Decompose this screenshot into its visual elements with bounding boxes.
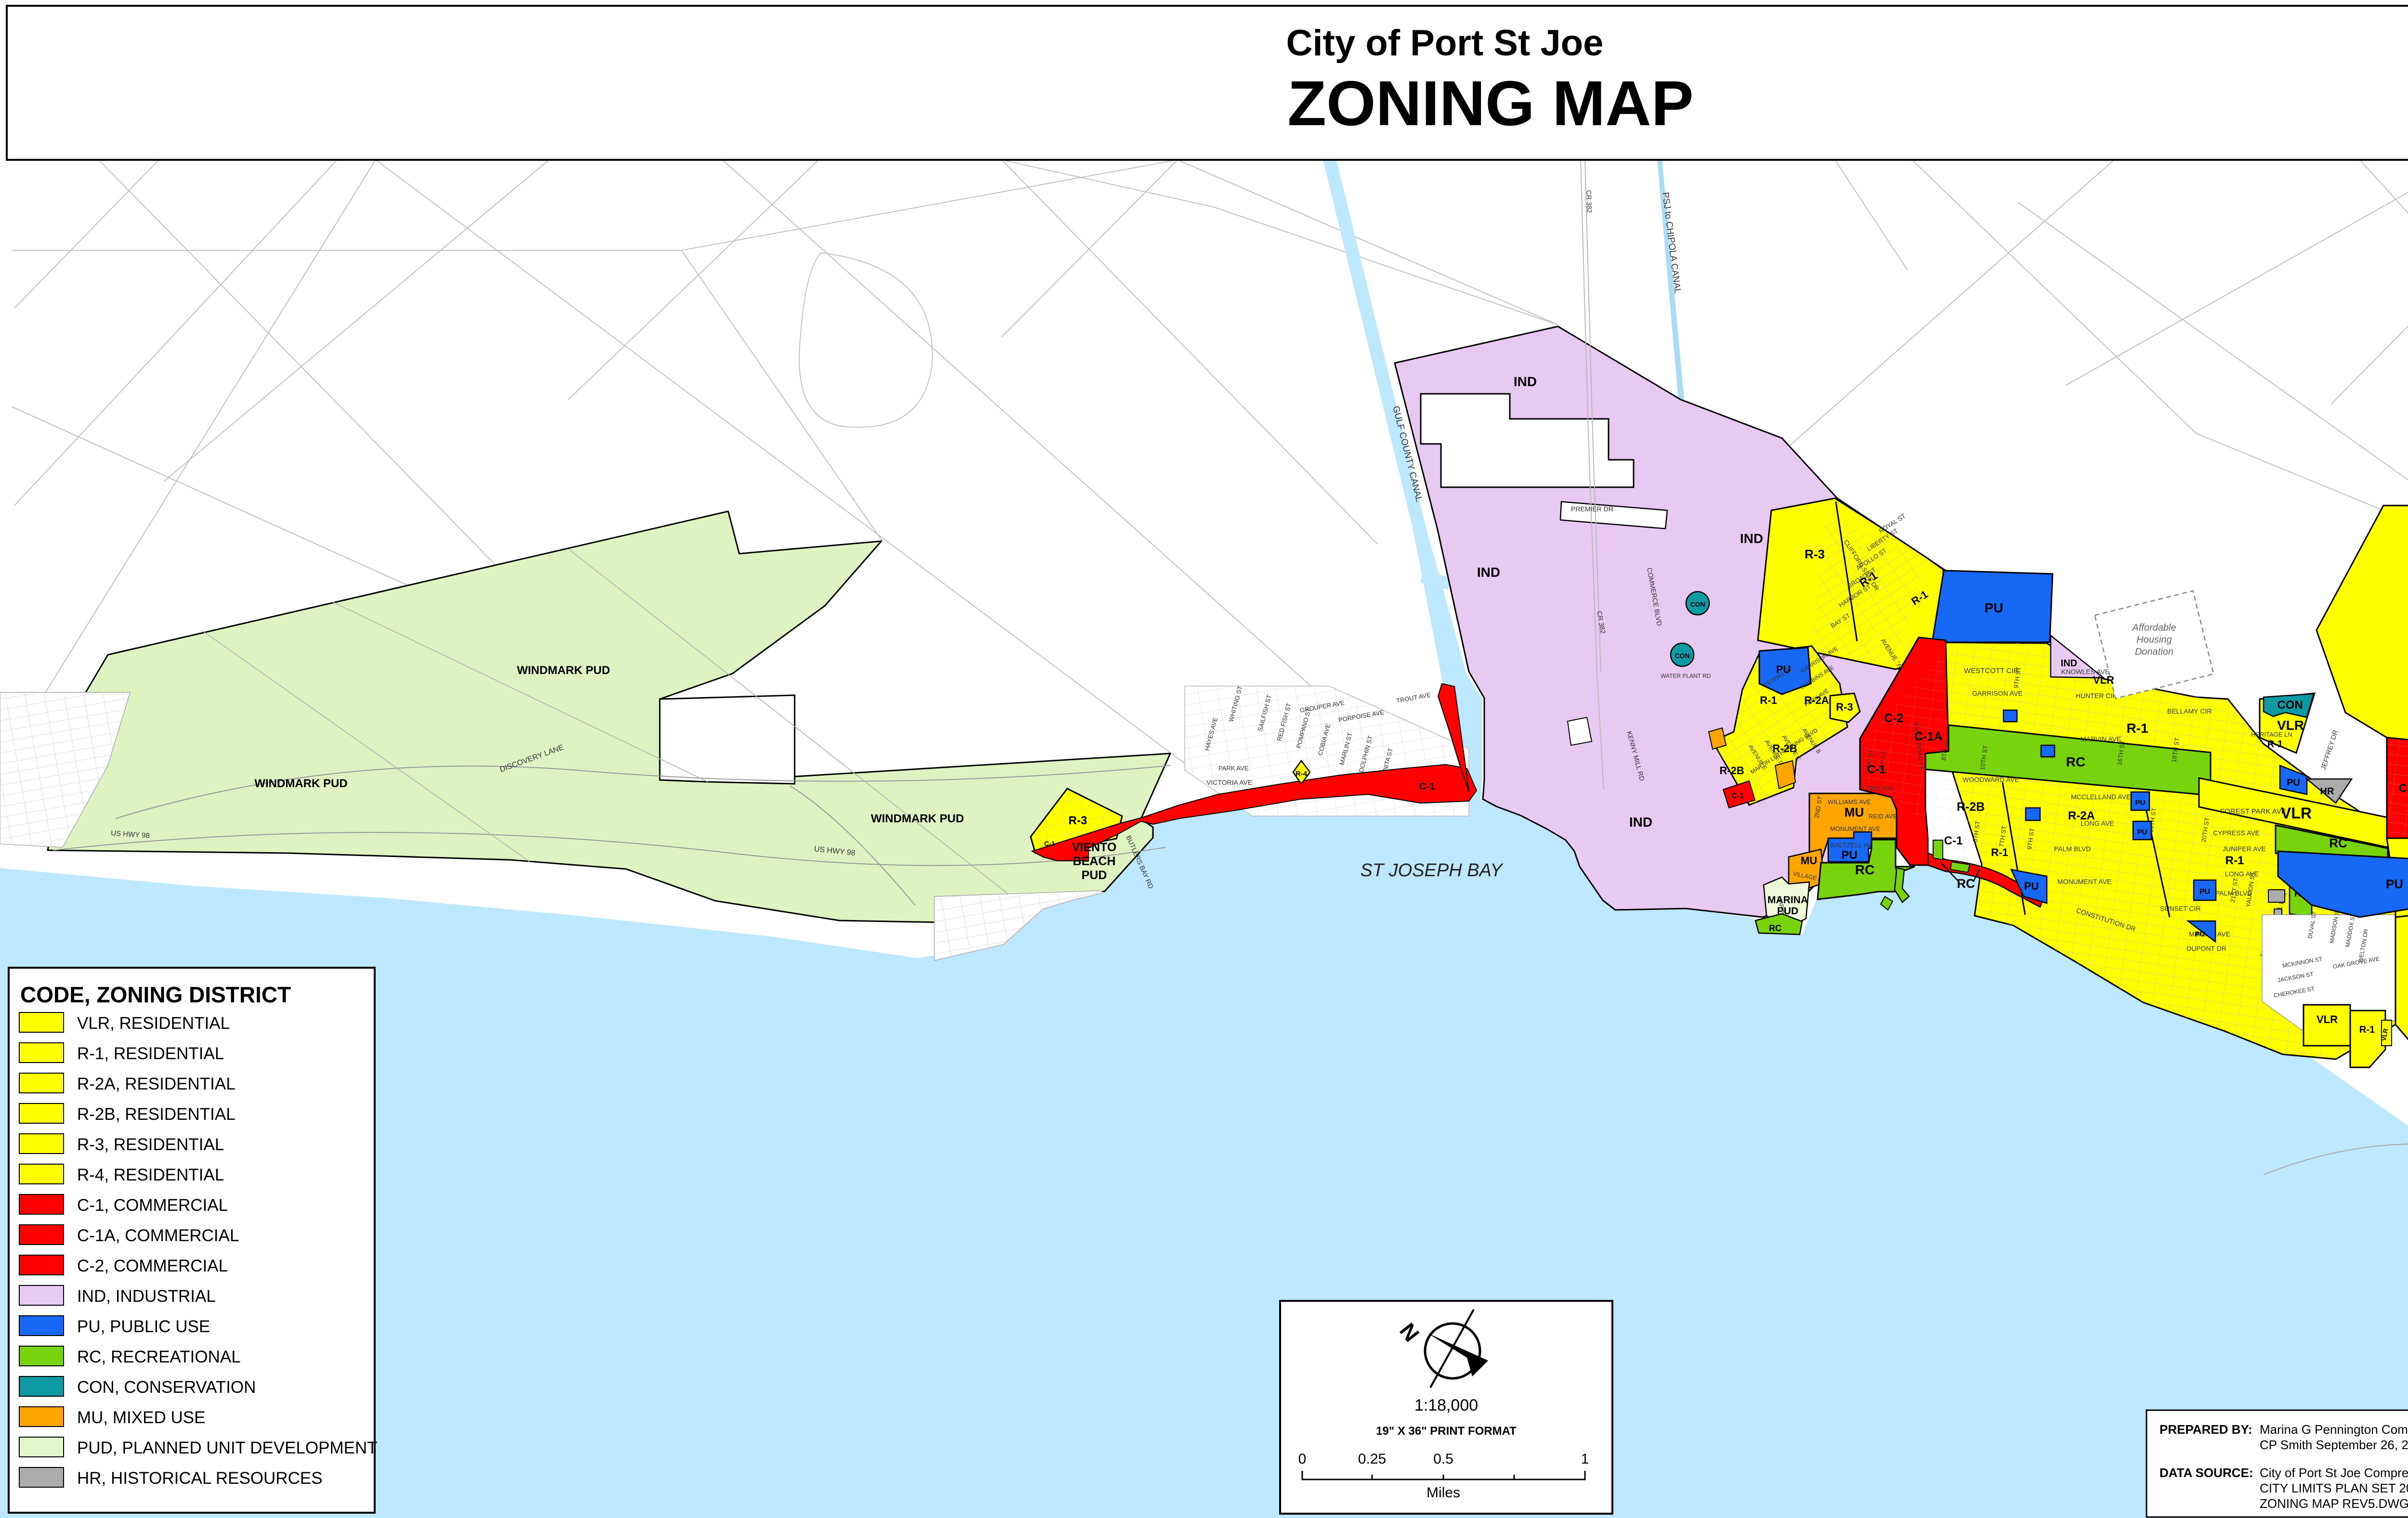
svg-text:MARVIN AVE: MARVIN AVE xyxy=(2081,735,2121,743)
svg-text:PARK AVE: PARK AVE xyxy=(1218,765,1249,772)
svg-text:R-4, RESIDENTIAL: R-4, RESIDENTIAL xyxy=(77,1166,224,1184)
svg-text:WESTCOTT CIR: WESTCOTT CIR xyxy=(1964,667,2019,675)
svg-text:PU: PU xyxy=(2199,888,2210,896)
svg-text:C-1, COMMERCIAL: C-1, COMMERCIAL xyxy=(77,1196,228,1215)
svg-text:R-1: R-1 xyxy=(1991,846,2008,858)
svg-text:HR: HR xyxy=(2320,786,2334,797)
svg-text:City of Port St Joe: City of Port St Joe xyxy=(1286,23,1604,64)
svg-text:BALTZELL AVE: BALTZELL AVE xyxy=(1830,841,1877,849)
svg-text:LONG AVE: LONG AVE xyxy=(1863,785,1894,792)
svg-text:CODE, ZONING DISTRICT: CODE, ZONING DISTRICT xyxy=(20,982,291,1007)
svg-text:HERITAGE LN: HERITAGE LN xyxy=(2251,731,2292,738)
svg-text:ZONING MAP REV5.DWG: ZONING MAP REV5.DWG xyxy=(2260,1496,2408,1511)
svg-text:MONUMENT AVE: MONUMENT AVE xyxy=(2057,878,2111,885)
svg-text:PU: PU xyxy=(2135,799,2146,807)
svg-text:PALM BLVD: PALM BLVD xyxy=(2054,845,2091,853)
svg-text:HUNTER CIR: HUNTER CIR xyxy=(2076,692,2117,700)
svg-text:PREMIER DR: PREMIER DR xyxy=(1571,505,1613,513)
svg-text:R-1: R-1 xyxy=(2267,739,2283,750)
svg-text:R-1: R-1 xyxy=(2126,721,2148,736)
svg-text:RC: RC xyxy=(2329,836,2347,850)
svg-text:PU, PUBLIC USE: PU, PUBLIC USE xyxy=(77,1317,210,1336)
svg-text:MARINA: MARINA xyxy=(1767,895,1808,906)
svg-text:R-1, RESIDENTIAL: R-1, RESIDENTIAL xyxy=(77,1044,224,1063)
svg-text:IND: IND xyxy=(1629,815,1652,830)
svg-text:VICTORIA AVE: VICTORIA AVE xyxy=(1206,778,1252,786)
svg-text:IND: IND xyxy=(2061,658,2077,669)
svg-text:RC: RC xyxy=(2066,754,2085,769)
svg-text:C-1: C-1 xyxy=(1419,781,1435,792)
svg-text:MCCLELLAND AVE: MCCLELLAND AVE xyxy=(2071,793,2131,801)
svg-text:VLR, RESIDENTIAL: VLR, RESIDENTIAL xyxy=(77,1014,230,1033)
svg-text:VLR: VLR xyxy=(2316,1013,2338,1025)
svg-text:R-3, RESIDENTIAL: R-3, RESIDENTIAL xyxy=(77,1135,224,1154)
svg-text:HR, HISTORICAL RESOURCES: HR, HISTORICAL RESOURCES xyxy=(77,1469,323,1488)
svg-text:DATA SOURCE:: DATA SOURCE: xyxy=(2159,1466,2253,1480)
svg-text:WATER PLANT RD: WATER PLANT RD xyxy=(1661,673,1711,679)
svg-text:DUPONT DR: DUPONT DR xyxy=(2186,945,2226,952)
svg-text:BELLAMY CIR: BELLAMY CIR xyxy=(2167,707,2212,715)
svg-text:Donation: Donation xyxy=(2135,647,2173,657)
svg-text:WINDMARK PUD: WINDMARK PUD xyxy=(517,664,610,677)
svg-text:VIENTO: VIENTO xyxy=(1072,841,1117,854)
svg-text:0.5: 0.5 xyxy=(1433,1451,1453,1467)
svg-text:Housing: Housing xyxy=(2136,635,2172,645)
svg-text:SUNSET CIR: SUNSET CIR xyxy=(2160,905,2201,912)
svg-text:PU: PU xyxy=(1985,600,2003,615)
svg-text:CON: CON xyxy=(1675,652,1689,660)
svg-text:1: 1 xyxy=(1581,1451,1589,1467)
svg-text:CON, CONSERVATION: CON, CONSERVATION xyxy=(77,1378,256,1397)
svg-text:RC: RC xyxy=(1957,876,1975,891)
svg-text:CR 382: CR 382 xyxy=(1585,190,1594,213)
svg-text:IND: IND xyxy=(1477,565,1500,580)
svg-text:IND, INDUSTRIAL: IND, INDUSTRIAL xyxy=(77,1287,216,1306)
svg-text:BEACH: BEACH xyxy=(1073,855,1116,868)
svg-text:R-3: R-3 xyxy=(1069,814,1087,827)
svg-text:PUD: PUD xyxy=(1082,869,1107,882)
svg-text:Affordable: Affordable xyxy=(2132,623,2176,633)
svg-text:19" X 36" PRINT FORMAT: 19" X 36" PRINT FORMAT xyxy=(1376,1425,1517,1438)
svg-text:PUD, PLANNED UNIT DEVELOPMENT: PUD, PLANNED UNIT DEVELOPMENT xyxy=(77,1439,378,1457)
svg-text:CITY LIMITS PLAN SET 2004 to P: CITY LIMITS PLAN SET 2004 to PSJ.DWG xyxy=(2260,1481,2408,1495)
svg-text:JUNIPER AVE: JUNIPER AVE xyxy=(2223,845,2266,853)
svg-text:City of Port St Joe Comprehens: City of Port St Joe Comprehensve Plan FL… xyxy=(2260,1466,2408,1480)
svg-text:IND: IND xyxy=(1514,374,1537,389)
svg-text:CYPRESS AVE: CYPRESS AVE xyxy=(2213,829,2260,837)
svg-text:RC: RC xyxy=(1769,923,1781,933)
svg-text:R-2B: R-2B xyxy=(1719,765,1744,777)
svg-text:VLR: VLR xyxy=(2093,674,2114,686)
svg-text:R-4: R-4 xyxy=(1296,770,1308,778)
svg-text:C-1A, COMMERCIAL: C-1A, COMMERCIAL xyxy=(77,1226,239,1245)
svg-text:Marina G Pennington Community: Marina G Pennington Community Planner xyxy=(2260,1422,2408,1437)
svg-text:R-3: R-3 xyxy=(1836,701,1853,713)
svg-text:C-1: C-1 xyxy=(2399,782,2408,795)
svg-text:WILLIAMS AVE: WILLIAMS AVE xyxy=(1828,798,1871,805)
svg-text:C-1: C-1 xyxy=(1044,840,1055,847)
svg-text:RC, RECREATIONAL: RC, RECREATIONAL xyxy=(77,1348,241,1366)
svg-text:R-1: R-1 xyxy=(2359,1025,2375,1035)
svg-text:WINDMARK PUD: WINDMARK PUD xyxy=(871,812,964,825)
svg-text:R-2A, RESIDENTIAL: R-2A, RESIDENTIAL xyxy=(77,1075,236,1093)
svg-text:0: 0 xyxy=(1298,1451,1307,1467)
svg-text:1:18,000: 1:18,000 xyxy=(1414,1396,1478,1414)
svg-text:C-2, COMMERCIAL: C-2, COMMERCIAL xyxy=(77,1257,228,1275)
svg-text:R-1: R-1 xyxy=(2225,854,2244,867)
svg-text:MU, MIXED USE: MU, MIXED USE xyxy=(77,1408,205,1427)
svg-text:PU: PU xyxy=(2195,930,2205,938)
svg-text:MU: MU xyxy=(1845,805,1864,819)
svg-text:PU: PU xyxy=(2137,828,2147,836)
svg-text:RC: RC xyxy=(1855,862,1874,877)
svg-text:LONG AVE: LONG AVE xyxy=(2081,819,2114,827)
svg-text:0.25: 0.25 xyxy=(1358,1451,1386,1467)
svg-text:R-3: R-3 xyxy=(1805,547,1825,561)
svg-text:MU: MU xyxy=(1801,855,1817,867)
svg-text:ZONING MAP: ZONING MAP xyxy=(1287,68,1693,139)
svg-text:PREPARED BY:: PREPARED BY: xyxy=(2159,1422,2252,1437)
svg-text:PU: PU xyxy=(2386,877,2403,891)
svg-text:WINDMARK PUD: WINDMARK PUD xyxy=(254,777,347,790)
svg-text:IND: IND xyxy=(1740,531,1763,546)
svg-text:PU: PU xyxy=(1841,849,1857,862)
svg-text:PU: PU xyxy=(2024,880,2039,892)
svg-text:GARRISON AVE: GARRISON AVE xyxy=(1972,689,2023,697)
svg-text:CP Smith September 26, 2012.: CP Smith September 26, 2012. xyxy=(2260,1438,2408,1452)
svg-text:Miles: Miles xyxy=(1426,1485,1460,1501)
svg-text:R-2B, RESIDENTIAL: R-2B, RESIDENTIAL xyxy=(77,1105,236,1124)
svg-text:PU: PU xyxy=(2287,778,2300,788)
svg-text:C-2: C-2 xyxy=(1884,712,1903,725)
svg-text:REID AVE: REID AVE xyxy=(1869,813,1897,820)
svg-text:C-1: C-1 xyxy=(1731,792,1744,800)
svg-text:CON: CON xyxy=(2277,699,2303,712)
svg-text:ST JOSEPH BAY: ST JOSEPH BAY xyxy=(1361,860,1504,881)
svg-text:R-1: R-1 xyxy=(1760,694,1777,706)
svg-text:CON: CON xyxy=(1690,600,1705,608)
svg-text:FOREST PARK AVE: FOREST PARK AVE xyxy=(2220,807,2286,816)
